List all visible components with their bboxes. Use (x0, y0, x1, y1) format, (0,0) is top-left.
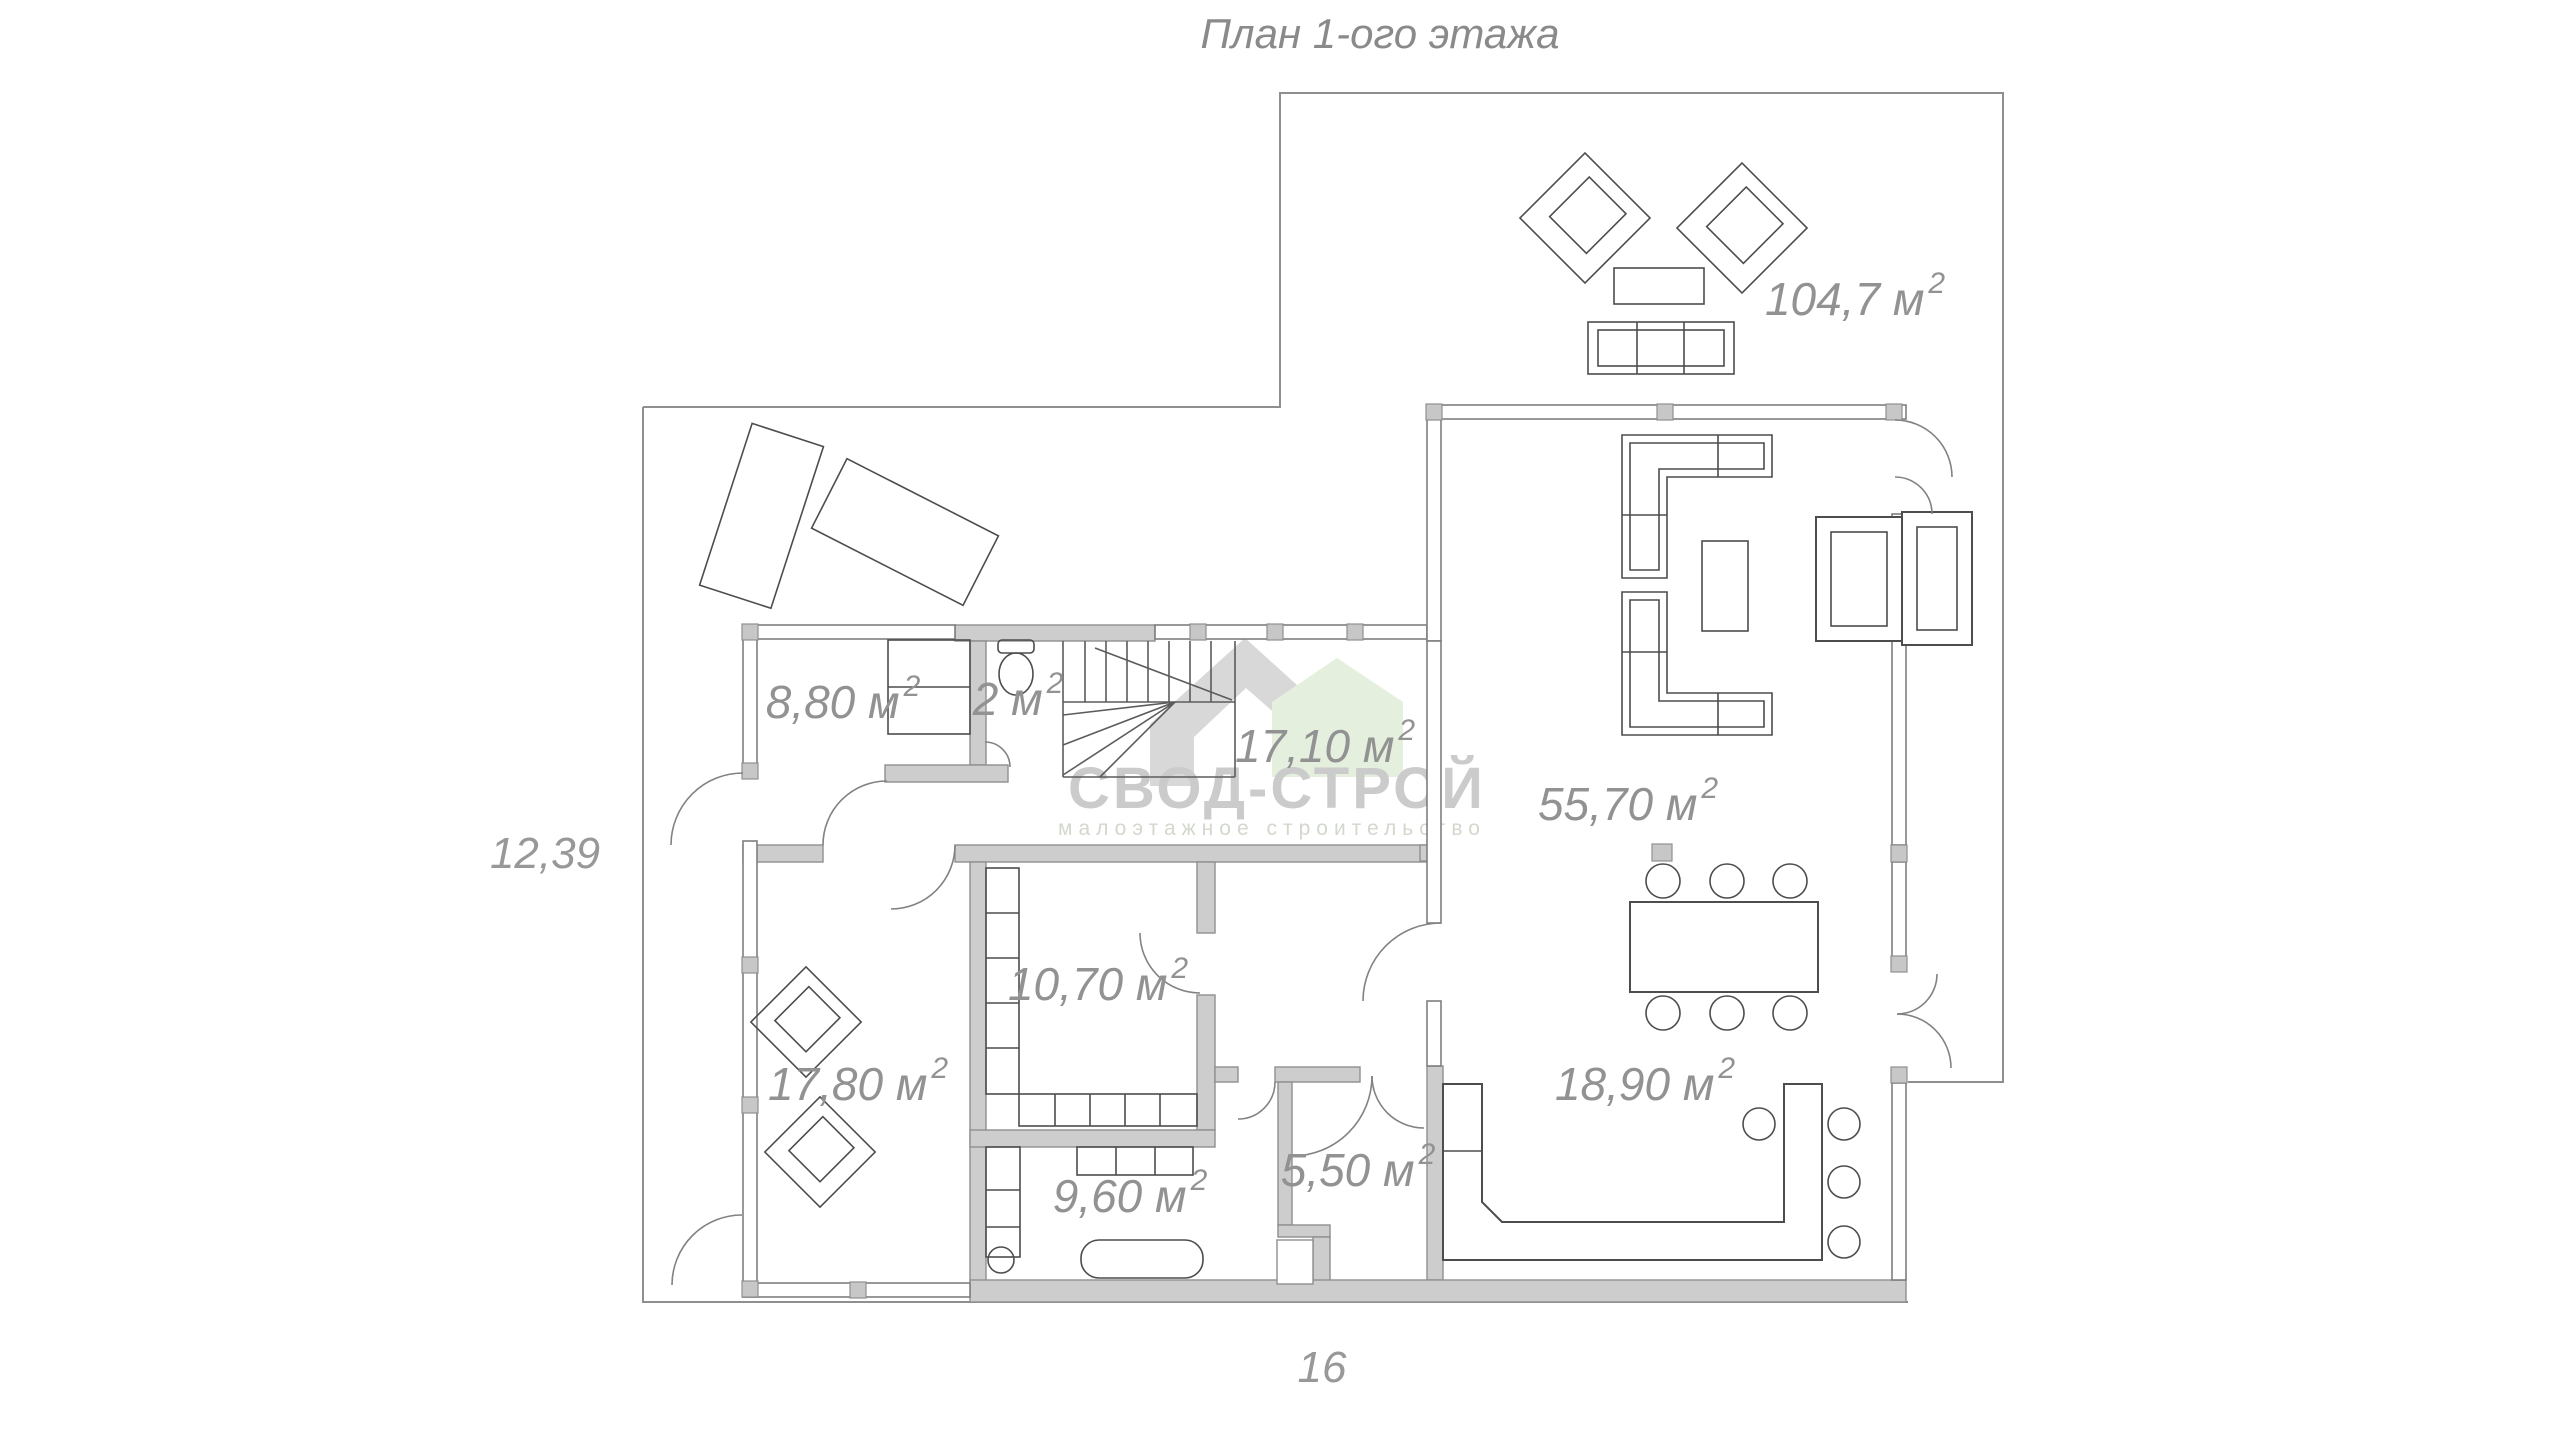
room-label-terrace: 104,7 м2 (1765, 267, 1945, 325)
fireplace (1816, 512, 1972, 645)
floor-plan-drawing: СВОД-СТРОЙ малоэтажное строительство (0, 0, 2550, 1440)
dining-table (1630, 902, 1818, 992)
wall-niche (1277, 1240, 1313, 1284)
floor-plan-page: СВОД-СТРОЙ малоэтажное строительство (0, 0, 2550, 1440)
room-label-bedroom: 8,80 м2 (766, 670, 921, 728)
room-label-living: 55,70 м2 (1538, 772, 1718, 830)
room-label-entry: 5,50 м2 (1281, 1138, 1436, 1196)
dimension-left: 12,39 (490, 829, 600, 878)
room-label-cabinet: 17,80 м2 (768, 1052, 948, 1110)
room-label-dressing: 10,70 м2 (1008, 952, 1188, 1010)
room-label-hall: 17,10 м2 (1235, 714, 1415, 772)
room-label-kitchen: 18,90 м2 (1555, 1052, 1735, 1110)
dimension-bottom: 16 (1298, 1343, 1347, 1392)
watermark-tagline: малоэтажное строительство (1058, 817, 1486, 840)
room-label-bathroom: 9,60 м2 (1053, 1164, 1208, 1222)
page-title: План 1-ого этажа (1200, 10, 1559, 57)
